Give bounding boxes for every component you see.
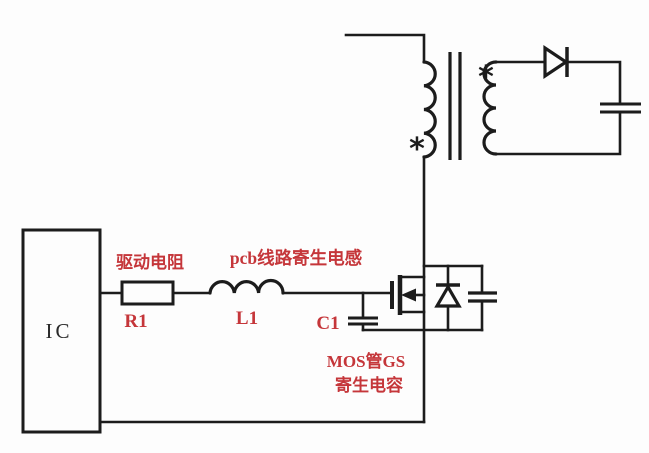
- wire-secondary-top-right: [567, 62, 620, 104]
- mos-gs-annotation-line2: 寄生电容: [335, 375, 403, 395]
- inductor-l1: [210, 281, 283, 293]
- body-diode-branch: [424, 266, 482, 330]
- body-diode-icon: [437, 287, 459, 306]
- drain-source-capacitor: [468, 266, 497, 330]
- drive-resistor-annotation: 驱动电阻: [116, 252, 184, 272]
- ic-block: IC: [23, 230, 100, 432]
- resistor-r1: [122, 282, 173, 304]
- schematic-canvas: IC: [0, 0, 649, 453]
- transformer-primary-winding: [424, 62, 435, 157]
- resistor-body: [122, 282, 173, 304]
- inductor-coil: [210, 281, 283, 293]
- r1-designator: R1: [124, 311, 147, 332]
- primary-dot-marker: *: [409, 132, 425, 167]
- c1-designator: C1: [316, 313, 339, 334]
- mosfet-arrow-icon: [401, 289, 416, 302]
- wire-input-top: [346, 35, 424, 62]
- flyback-parasitics-schematic: IC: [0, 0, 649, 453]
- wire-secondary-bottom: [496, 112, 620, 154]
- secondary-circuit: [496, 47, 641, 154]
- pcb-inductance-annotation: pcb线路寄生电感: [230, 248, 363, 268]
- mos-gs-annotation-line1: MOS管GS: [327, 351, 405, 371]
- ic-label: IC: [46, 319, 73, 343]
- l1-designator: L1: [236, 308, 258, 329]
- transformer: * *: [346, 35, 496, 167]
- annotations: 驱动电阻 R1 pcb线路寄生电感 L1 C1 MOS管GS 寄生电容: [116, 248, 405, 395]
- rectifier-diode-icon: [545, 48, 566, 76]
- secondary-dot-marker: *: [478, 60, 494, 95]
